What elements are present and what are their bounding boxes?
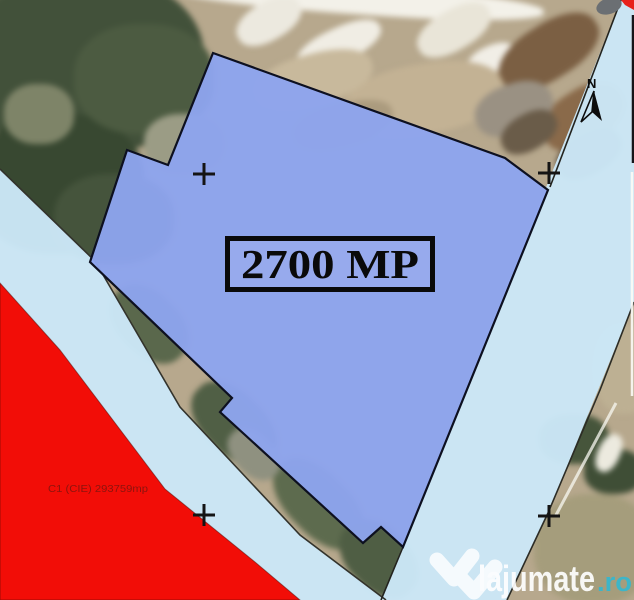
watermark: lajumate .ro [437, 556, 632, 599]
watermark-tld: .ro [597, 567, 632, 597]
area-label-box: 2700 MP [228, 239, 433, 290]
north-arrow-label: N [587, 76, 596, 91]
watermark-brand: lajumate [478, 558, 595, 599]
red-zone-label: C1 (CIE) 293759mp [48, 483, 148, 495]
area-label: 2700 MP [241, 241, 419, 287]
cadastral-map: C1 (CIE) 293759mp N 2700 MP [0, 0, 634, 600]
